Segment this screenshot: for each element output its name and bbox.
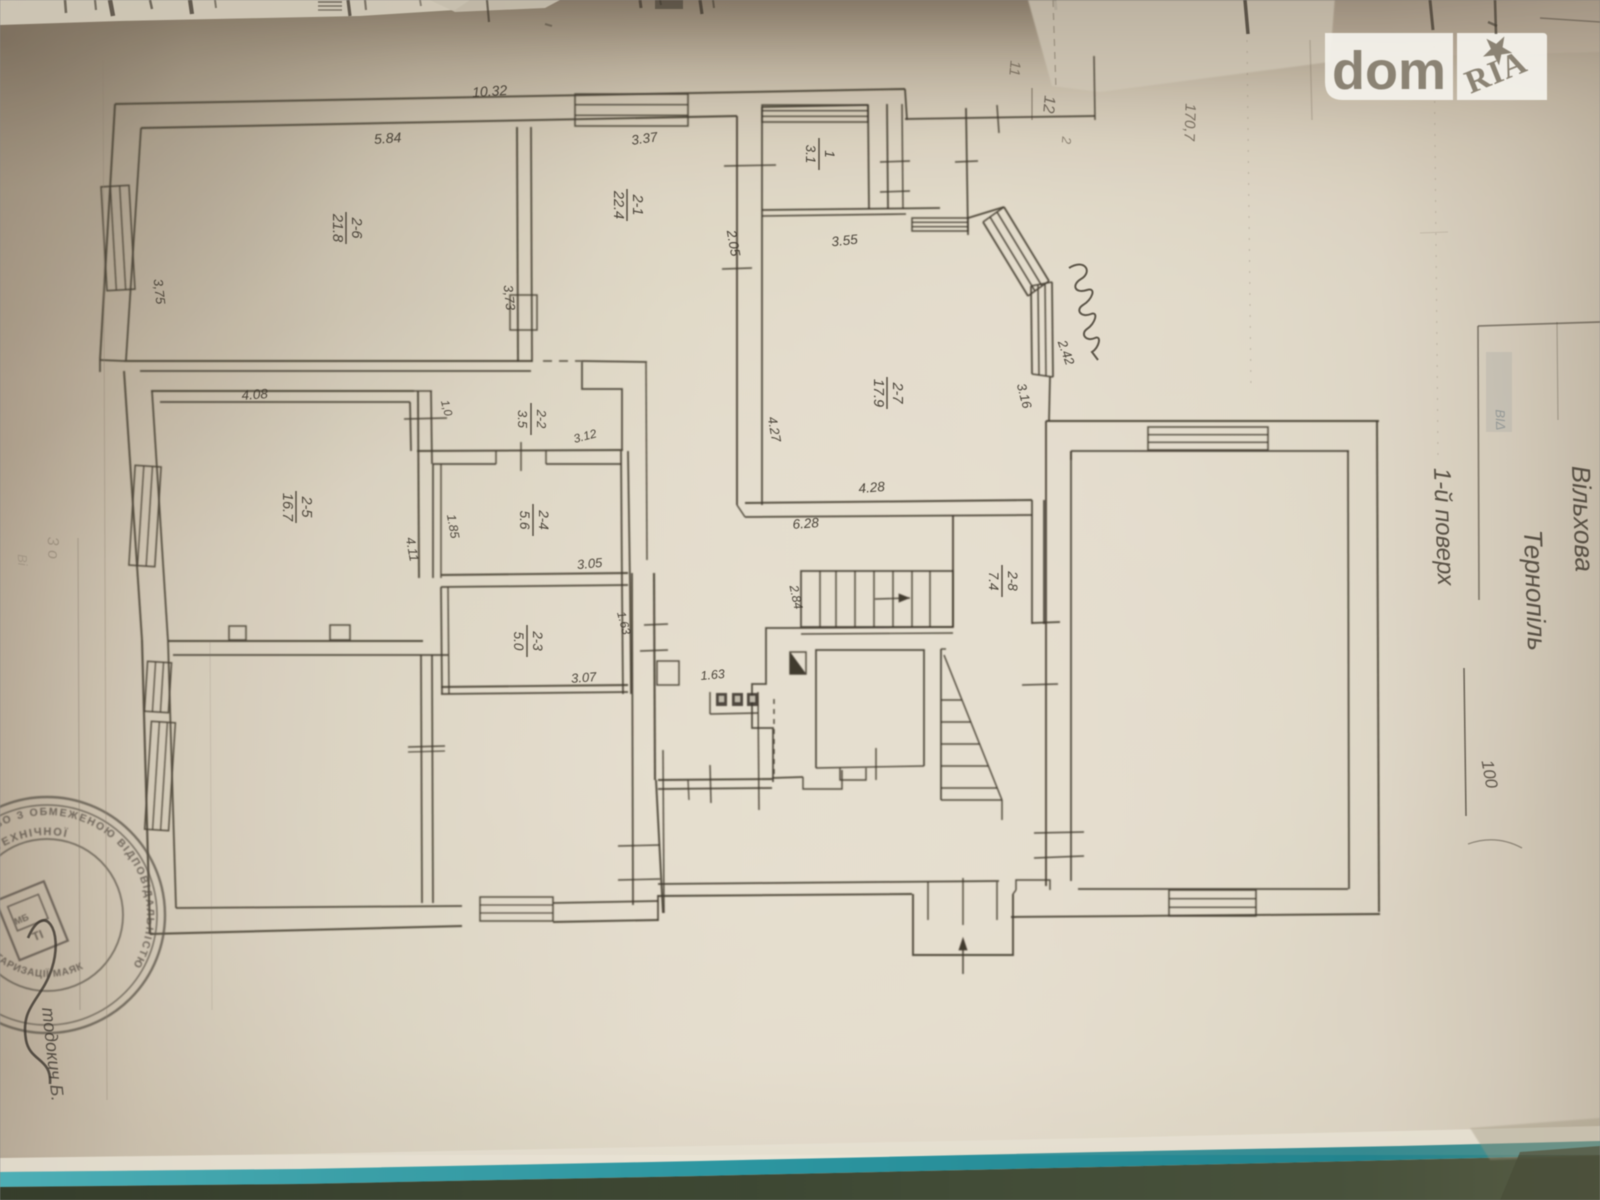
- svg-text:3.55: 3.55: [831, 232, 859, 250]
- svg-text:6.28: 6.28: [792, 515, 820, 532]
- svg-text:Ві: Ві: [15, 554, 30, 567]
- svg-text:3.1: 3.1: [803, 145, 818, 164]
- svg-text:1-й поверх: 1-й поверх: [1428, 467, 1459, 587]
- svg-text:7.4: 7.4: [986, 572, 1001, 591]
- svg-text:12: 12: [1039, 95, 1057, 114]
- svg-text:ΒΙΔ: ΒΙΔ: [1493, 409, 1509, 431]
- svg-text:170,7: 170,7: [1180, 103, 1198, 142]
- svg-text:Вільхова: Вільхова: [1566, 465, 1600, 572]
- svg-text:17.9: 17.9: [870, 379, 886, 407]
- svg-text:3 о: 3 о: [44, 536, 62, 559]
- svg-text:2-8: 2-8: [1005, 570, 1020, 591]
- svg-text:2-7: 2-7: [889, 382, 905, 405]
- svg-text:dom: dom: [1332, 41, 1446, 101]
- svg-text:4.28: 4.28: [858, 479, 886, 496]
- svg-text:11: 11: [1005, 60, 1023, 77]
- svg-text:Тернопіль: Тернопіль: [1518, 529, 1552, 651]
- svg-text:1: 1: [822, 150, 837, 158]
